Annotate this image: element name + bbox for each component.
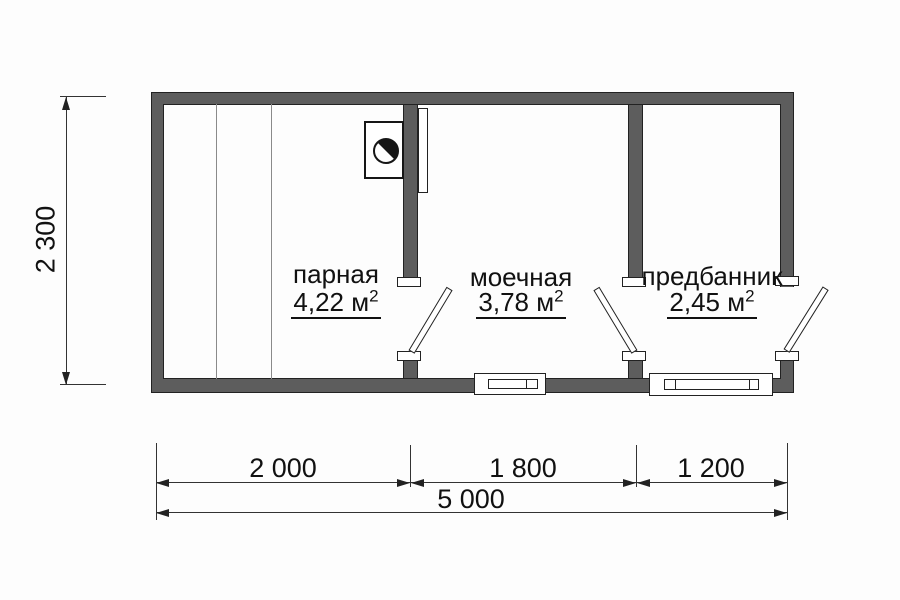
area-value: 4,22 м xyxy=(293,287,369,317)
window-divider xyxy=(675,379,676,390)
room-area-washing: 3,78 м2 xyxy=(411,289,631,319)
room-label-dressing: предбанник xyxy=(602,263,822,289)
heat-shield-panel xyxy=(418,108,428,193)
door-jamb-1-bottom xyxy=(397,351,421,361)
arrow-right-icon xyxy=(774,479,787,487)
bench-edge-line-1 xyxy=(216,104,217,379)
arrow-left-icon xyxy=(156,509,169,517)
partition-wall-2-upper xyxy=(628,104,643,280)
arrow-left-icon xyxy=(637,479,650,487)
arrow-right-icon xyxy=(623,479,636,487)
door-jamb-2-bottom xyxy=(622,351,646,361)
area-value: 2,45 м xyxy=(669,287,745,317)
window-glazing xyxy=(664,379,759,390)
room-area-dressing: 2,45 м2 xyxy=(602,289,822,319)
dim-label-height: 2 300 xyxy=(33,180,60,300)
ext-line-right xyxy=(787,443,788,520)
floor-plan-canvas: парная 4,22 м2 моечная 3,78 м2 предбанни… xyxy=(0,0,900,600)
stove-icon xyxy=(364,121,404,179)
dim-label-total-width: 5 000 xyxy=(411,486,531,513)
building-interior xyxy=(163,104,781,379)
partition-wall-1-upper xyxy=(403,104,418,280)
area-sup: 2 xyxy=(745,286,754,305)
dim-line-height xyxy=(66,97,67,385)
window-dressing-room xyxy=(649,373,773,396)
arrow-down-icon xyxy=(62,372,70,385)
bench-edge-line-2 xyxy=(271,104,272,379)
window-washing-room xyxy=(474,373,546,395)
area-sup: 2 xyxy=(369,286,378,305)
dim-label-washing-width: 1 800 xyxy=(463,455,583,482)
arrow-right-icon xyxy=(397,479,410,487)
arrow-left-icon xyxy=(156,479,169,487)
arrow-up-icon xyxy=(62,97,70,110)
area-sup: 2 xyxy=(554,286,563,305)
dim-label-dressing-width: 1 200 xyxy=(651,455,771,482)
stove-burner-icon xyxy=(373,138,399,164)
window-divider xyxy=(749,379,750,390)
arrow-right-icon xyxy=(774,509,787,517)
area-value: 3,78 м xyxy=(478,287,554,317)
window-glazing xyxy=(488,379,538,389)
entrance-jamb-bottom xyxy=(775,351,799,361)
dim-label-steam-width: 2 000 xyxy=(223,455,343,482)
window-divider xyxy=(526,379,527,389)
